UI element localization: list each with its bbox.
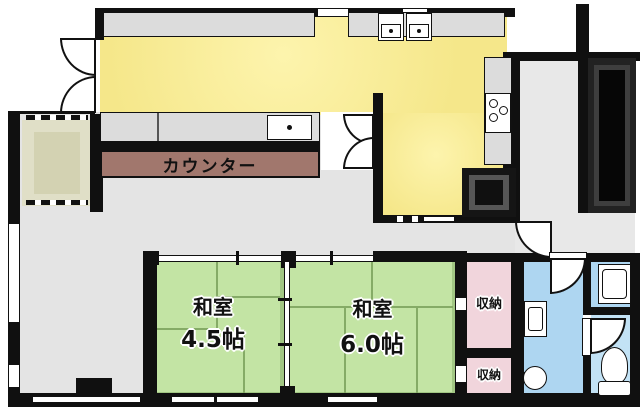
window-left-2	[8, 365, 20, 387]
corridor-floor	[519, 60, 578, 215]
room2-size-label: 6.0帖	[312, 333, 432, 361]
door-stop-tick	[330, 251, 333, 265]
drawer-knob	[287, 125, 292, 130]
cabinet-divider	[157, 113, 159, 142]
wall-kitchen-divider	[373, 93, 383, 223]
sliding-door-room1-top	[159, 255, 283, 262]
wall-post-c	[280, 386, 295, 397]
kitchen-pass-through-opening	[424, 216, 454, 222]
sliding-door-between-rooms	[284, 262, 290, 393]
door-swing-arc-icon	[60, 38, 96, 76]
sink1-knob	[389, 29, 393, 33]
wall-toilet-left	[583, 353, 591, 397]
burner	[489, 113, 498, 122]
wall-counter-line	[100, 141, 320, 150]
window-left-1	[8, 224, 20, 322]
window-mullion-tick	[214, 393, 217, 406]
washing-machine-inner	[602, 269, 627, 299]
stairwell-core	[599, 70, 625, 201]
counter-bar: カウンター	[100, 150, 320, 178]
wall-storage-mid	[455, 348, 513, 358]
storage2-label: 収納	[463, 369, 515, 384]
wall-room1-left	[143, 251, 157, 397]
entry-floor-inner	[34, 132, 80, 194]
door-stop-tick	[236, 251, 239, 265]
kitchen-pass-through-dashed	[388, 216, 422, 222]
burner	[489, 99, 498, 108]
window-bottom-1	[33, 396, 140, 403]
door-swing-arc-icon	[60, 76, 96, 113]
room2-name-label: 和室	[315, 298, 430, 322]
room1-size-label: 4.5帖	[153, 328, 273, 356]
storage1-label: 収納	[463, 298, 515, 314]
window-top-1	[318, 8, 348, 17]
wall-left-upper	[8, 111, 20, 224]
door-stop-tick	[278, 343, 292, 346]
burner	[499, 106, 508, 115]
sink2-knob	[417, 29, 421, 33]
wall-right-outer	[630, 253, 640, 407]
room1-name-label: 和室	[153, 296, 273, 320]
entry-top-dashed-opening	[26, 115, 88, 120]
pillar-bottom	[76, 378, 112, 395]
window-bottom-3	[328, 396, 377, 403]
round-basin-icon	[523, 366, 547, 390]
sliding-door-room2-top	[296, 255, 373, 262]
toilet-tank	[598, 381, 631, 396]
kitchen-upper-cabinet-left	[103, 12, 315, 37]
wall-left-mid	[8, 322, 20, 365]
toilet-icon	[601, 347, 628, 384]
door-stop-tick	[278, 298, 292, 301]
counter-label: カウンター	[163, 152, 258, 177]
tatami-room-6-0-floor	[283, 258, 455, 395]
refrigerator-core	[475, 180, 503, 205]
wall-room2-top	[373, 251, 467, 262]
floor-plan-canvas: カウンター 和室 4.5帖 和室 6.0帖 収納 収納	[0, 0, 640, 410]
washbasin-inner	[528, 307, 543, 331]
entry-bottom-dashed-opening	[26, 200, 88, 205]
wall-post-a	[143, 251, 159, 265]
wall-stub-top	[576, 4, 589, 54]
